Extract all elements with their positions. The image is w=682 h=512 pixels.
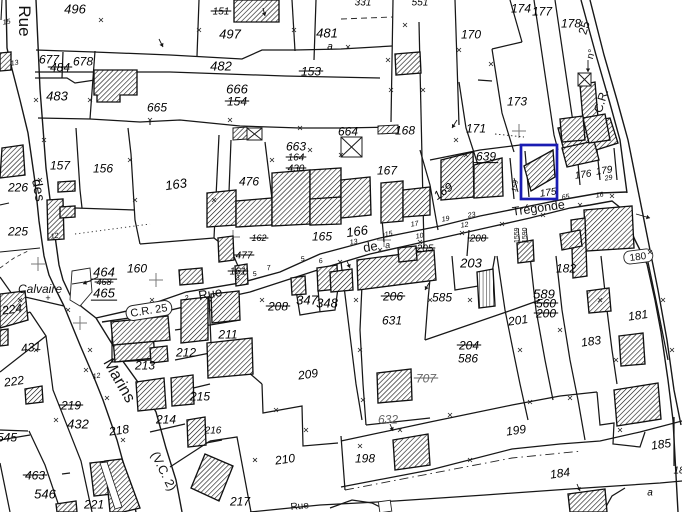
svg-text:665: 665 bbox=[147, 100, 167, 114]
svg-text:225: 225 bbox=[7, 224, 28, 238]
svg-text:430: 430 bbox=[288, 164, 305, 175]
svg-text:12: 12 bbox=[92, 372, 101, 380]
svg-text:663: 663 bbox=[286, 139, 306, 153]
svg-text:177: 177 bbox=[532, 4, 553, 18]
svg-text:496: 496 bbox=[64, 2, 86, 17]
svg-text:210: 210 bbox=[273, 451, 296, 468]
svg-text:183: 183 bbox=[580, 333, 602, 350]
svg-text:431: 431 bbox=[20, 339, 42, 356]
svg-text:211: 211 bbox=[217, 327, 237, 341]
svg-text:214: 214 bbox=[155, 412, 176, 426]
svg-text:212: 212 bbox=[175, 345, 196, 359]
svg-text:157: 157 bbox=[50, 158, 71, 172]
svg-text:201: 201 bbox=[506, 312, 529, 329]
svg-text:481: 481 bbox=[316, 26, 338, 41]
svg-text:348: 348 bbox=[316, 296, 338, 311]
svg-text:176: 176 bbox=[574, 168, 592, 181]
svg-text:12: 12 bbox=[460, 221, 469, 229]
svg-text:216: 216 bbox=[204, 426, 222, 437]
svg-text:167: 167 bbox=[377, 163, 398, 177]
svg-text:586: 586 bbox=[458, 351, 478, 365]
svg-text:164: 164 bbox=[288, 153, 305, 164]
svg-text:432: 432 bbox=[67, 417, 89, 432]
svg-text:224: 224 bbox=[0, 301, 23, 318]
svg-text:497: 497 bbox=[219, 27, 241, 42]
svg-text:678: 678 bbox=[73, 54, 93, 68]
svg-text:546: 546 bbox=[34, 487, 56, 502]
svg-text:477: 477 bbox=[236, 251, 253, 262]
svg-text:221: 221 bbox=[83, 497, 104, 511]
svg-text:483: 483 bbox=[46, 89, 68, 104]
svg-text:184: 184 bbox=[549, 465, 571, 482]
svg-text:180: 180 bbox=[629, 251, 647, 264]
svg-text:203: 203 bbox=[459, 256, 482, 271]
svg-text:632: 632 bbox=[378, 412, 398, 426]
svg-text:631: 631 bbox=[382, 313, 402, 327]
svg-text:215: 215 bbox=[189, 389, 210, 403]
svg-text:217: 217 bbox=[229, 494, 251, 508]
svg-text:13: 13 bbox=[349, 238, 358, 246]
svg-text:222: 222 bbox=[2, 373, 25, 390]
svg-text:a: a bbox=[647, 488, 653, 499]
svg-text:160: 160 bbox=[127, 261, 147, 275]
svg-text:331: 331 bbox=[355, 0, 372, 9]
svg-text:+: + bbox=[45, 293, 50, 303]
svg-text:465: 465 bbox=[93, 286, 115, 301]
svg-text:12: 12 bbox=[50, 232, 59, 240]
svg-text:13: 13 bbox=[10, 59, 19, 67]
svg-text:173: 173 bbox=[507, 94, 527, 108]
svg-text:de: de bbox=[362, 238, 379, 255]
svg-text:163: 163 bbox=[164, 175, 188, 193]
svg-text:185: 185 bbox=[650, 436, 672, 453]
svg-text:664: 664 bbox=[338, 124, 358, 138]
svg-text:166: 166 bbox=[345, 222, 369, 240]
svg-text:165: 165 bbox=[312, 229, 332, 243]
svg-text:199: 199 bbox=[505, 422, 527, 439]
svg-text:170: 170 bbox=[461, 27, 481, 41]
svg-text:151: 151 bbox=[213, 7, 230, 18]
svg-text:545: 545 bbox=[0, 430, 17, 444]
svg-text:a: a bbox=[327, 42, 333, 53]
svg-text:226: 226 bbox=[7, 180, 28, 194]
svg-text:205: 205 bbox=[416, 244, 434, 255]
svg-text:181: 181 bbox=[627, 307, 649, 324]
svg-text:209: 209 bbox=[296, 366, 319, 383]
svg-text:213: 213 bbox=[134, 358, 155, 372]
svg-text:Rue: Rue bbox=[15, 5, 34, 36]
svg-text:218: 218 bbox=[107, 422, 130, 439]
svg-text:476: 476 bbox=[239, 174, 259, 188]
svg-text:208: 208 bbox=[469, 234, 487, 245]
svg-text:Calvaire: Calvaire bbox=[18, 282, 62, 296]
svg-text:168: 168 bbox=[395, 123, 415, 137]
svg-text:18: 18 bbox=[673, 466, 682, 477]
svg-text:198: 198 bbox=[355, 451, 375, 465]
svg-text:171: 171 bbox=[466, 121, 486, 135]
svg-text:10: 10 bbox=[415, 232, 424, 240]
svg-text:156: 156 bbox=[93, 161, 113, 175]
svg-text:585: 585 bbox=[432, 290, 452, 304]
svg-text:174: 174 bbox=[511, 1, 531, 15]
svg-text:15: 15 bbox=[384, 230, 393, 238]
svg-text:16: 16 bbox=[595, 191, 604, 199]
svg-text:639: 639 bbox=[476, 149, 496, 163]
svg-text:15: 15 bbox=[2, 18, 11, 26]
svg-text:482: 482 bbox=[210, 59, 232, 74]
svg-text:Rue: Rue bbox=[290, 500, 310, 512]
svg-text:551: 551 bbox=[412, 0, 429, 9]
svg-text:19: 19 bbox=[441, 215, 450, 223]
svg-text:182: 182 bbox=[556, 261, 576, 275]
